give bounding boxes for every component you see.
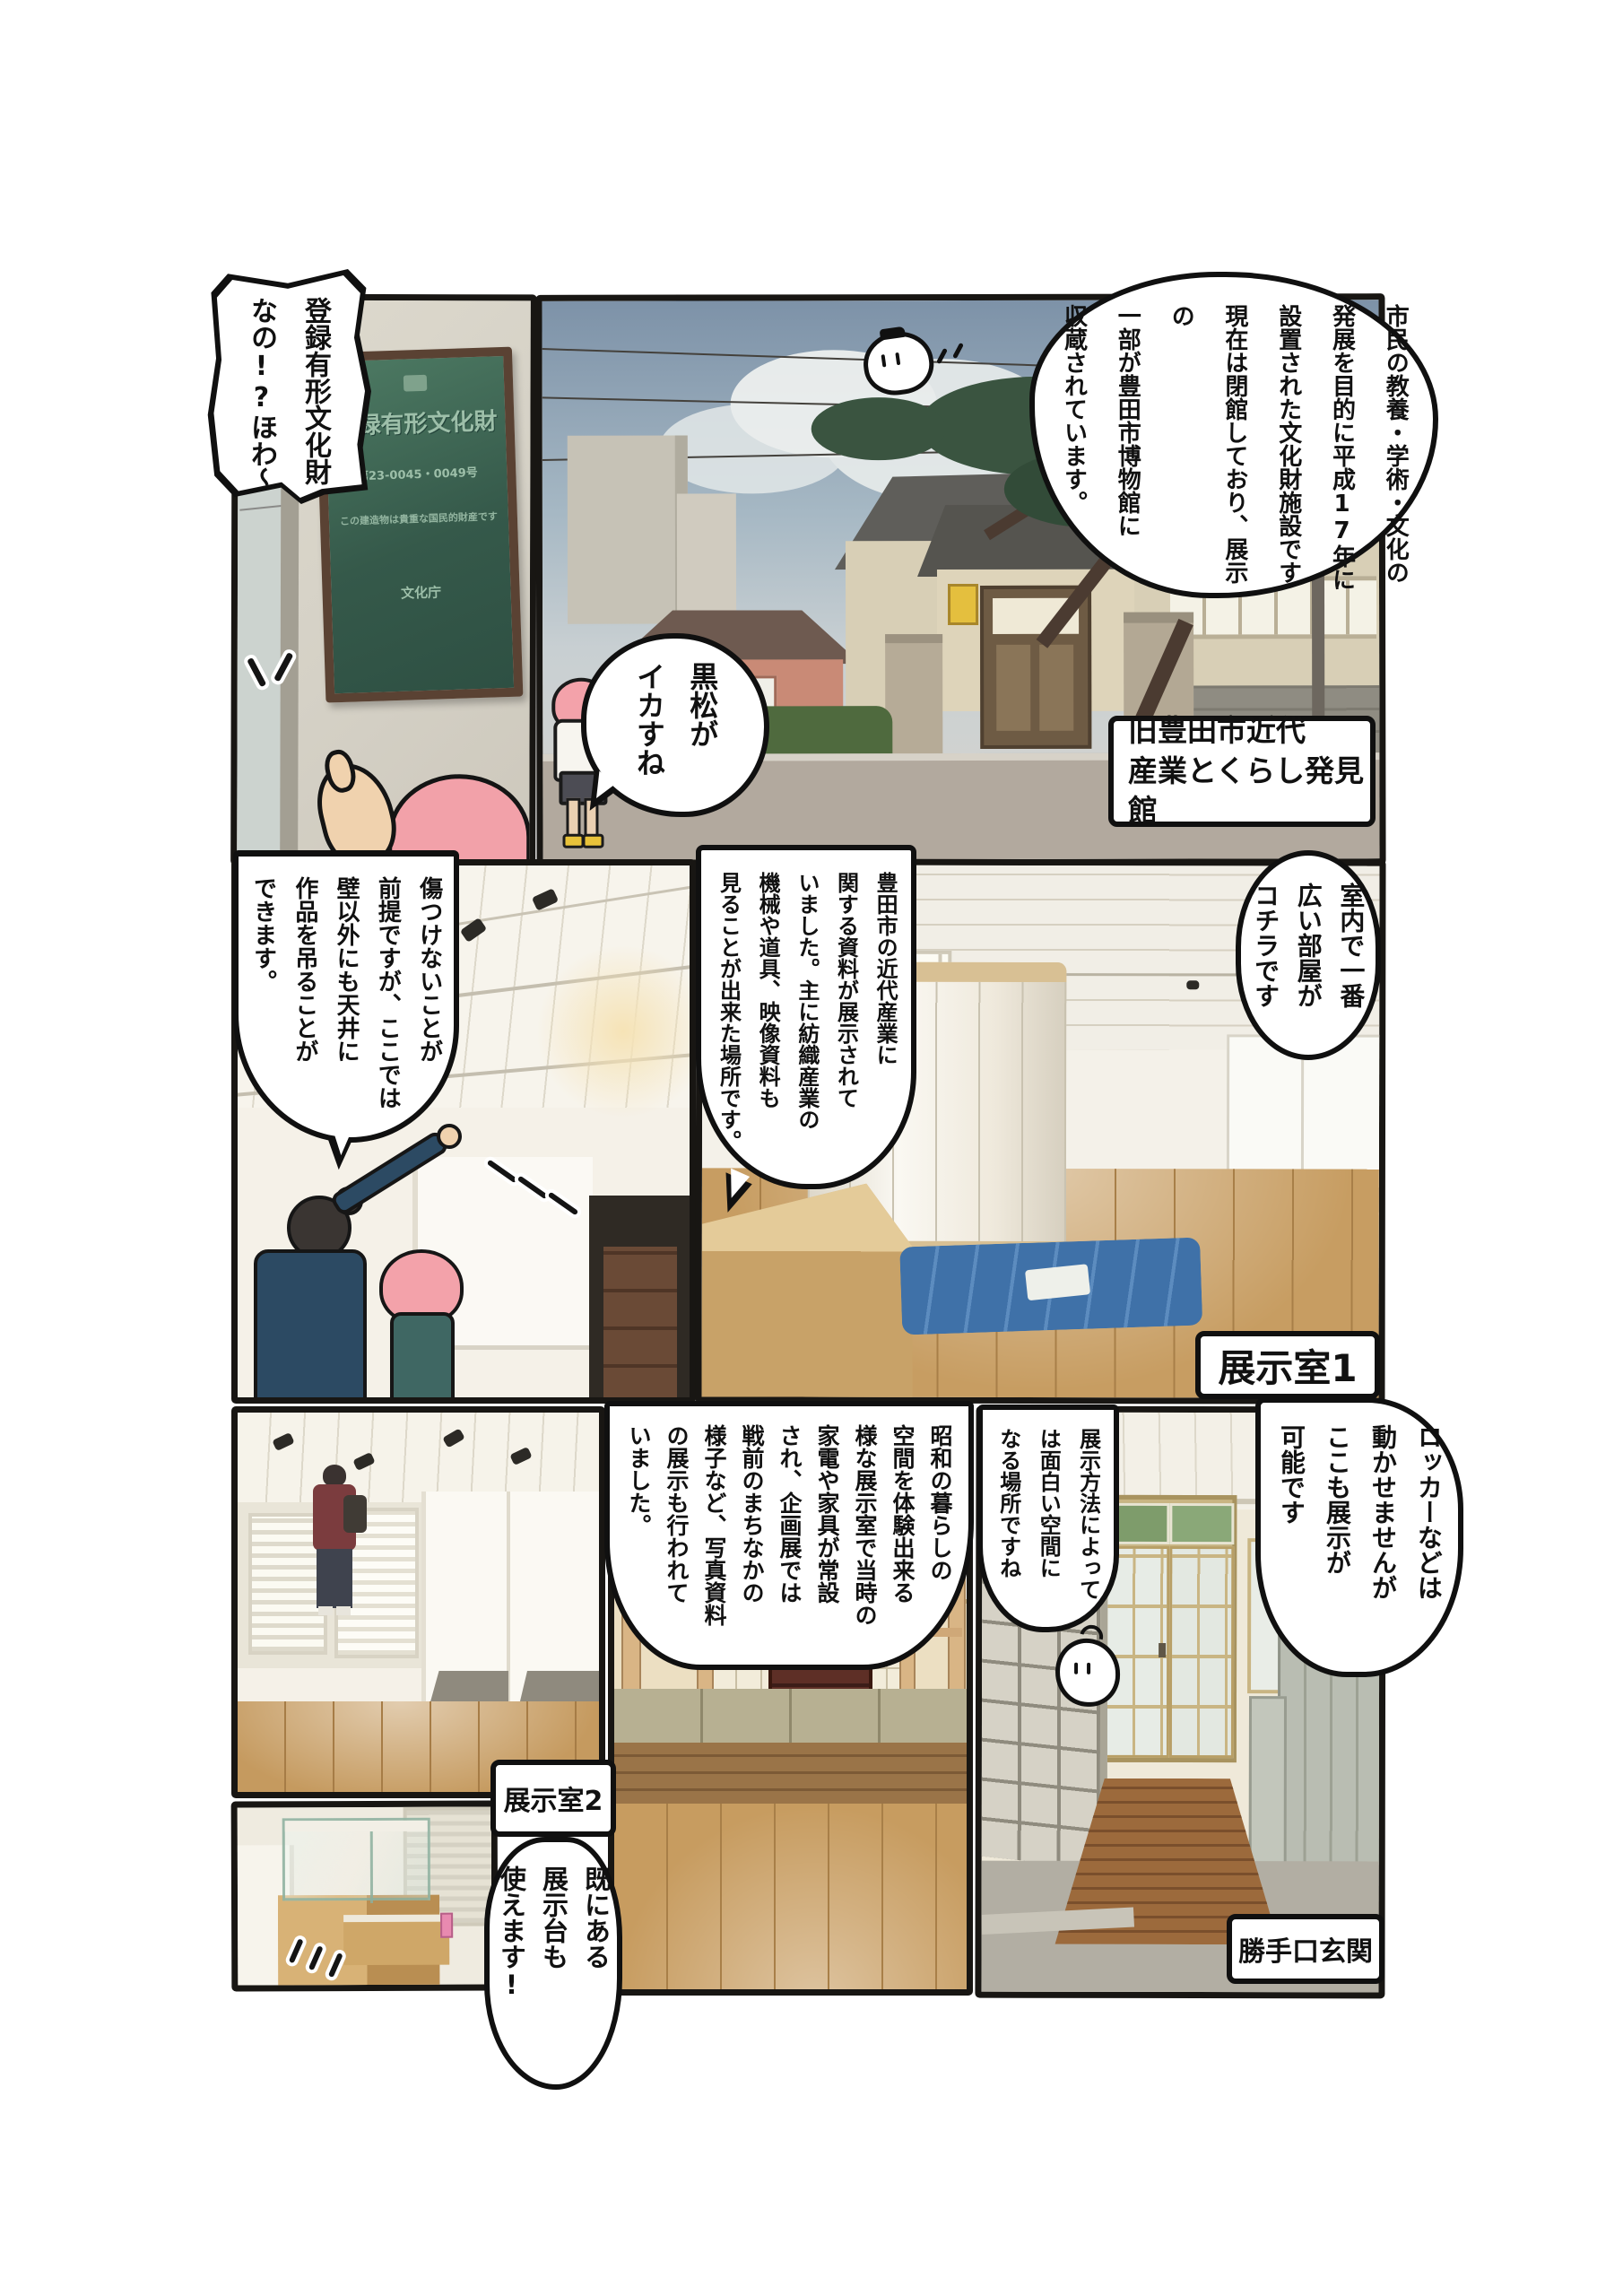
bubble-display-method-text: 展示方法によって は面白い空間に なる場所ですね xyxy=(988,1410,1107,1627)
bubble-display-method: 展示方法によって は面白い空間に なる場所ですね xyxy=(977,1405,1119,1632)
transom-green xyxy=(1169,1503,1234,1544)
bubble-kuromatsu-text: 黒松が イカすね xyxy=(622,639,728,812)
plaque-emblem xyxy=(404,375,428,392)
case-open-drawer xyxy=(343,1915,449,1965)
bubble-pedestal: 既にある 展示台も 使えます! xyxy=(484,1837,622,2090)
wall-base xyxy=(519,1671,600,1705)
wooden-platform xyxy=(701,1183,912,1404)
bubble-intro-text: 市民の教養・学術・文化の 発展を目的に平成17年に 設置された文化財施設です 現… xyxy=(1046,277,1422,593)
chibi-body xyxy=(390,1312,455,1404)
frosted-door-right xyxy=(1169,1546,1234,1758)
door-panel xyxy=(996,645,1030,731)
wood-cabinet xyxy=(603,1247,677,1402)
background-tower xyxy=(677,493,736,628)
ghost-eye xyxy=(895,352,900,365)
bubble-locker-text: ロッカーなどは 動かせませんが ここも展示が 可能です xyxy=(1268,1403,1451,1672)
label-room1-text: 展示室1 xyxy=(1218,1338,1357,1393)
glass-edge xyxy=(370,1831,373,1903)
panel-exhibit-room2-photo xyxy=(231,1406,605,1798)
door-handle xyxy=(1159,1643,1166,1657)
shoulder-bag xyxy=(343,1495,367,1533)
visitor-head xyxy=(323,1465,346,1486)
wall-base xyxy=(430,1671,508,1705)
label-room1: 展示室1 xyxy=(1195,1331,1380,1399)
bubble-jagged-inner: 登録有形文化財 なの!?ほわ〜 xyxy=(211,275,365,498)
hanging-light xyxy=(1186,980,1199,989)
blue-tarp xyxy=(899,1237,1202,1335)
label-entrance: 勝手口玄関 xyxy=(1227,1914,1384,1984)
visitor-shoe xyxy=(336,1606,351,1615)
plaque-agency: 文化庁 xyxy=(331,580,511,604)
ghost-eye xyxy=(881,354,887,367)
bubble-showa-text: 昭和の暮らしの 空間を体験出来る 様な展示室で当時の 家電や家具が常設 され、企… xyxy=(620,1406,959,1665)
platform-front-boards xyxy=(614,1743,973,1805)
woman-body xyxy=(254,1249,367,1404)
visitor-pants xyxy=(317,1549,352,1608)
apartment-building xyxy=(568,436,688,624)
bubble-ceiling-hang-text: 傷つけないことが 前提ですが、ここでは 壁以外にも天井に 作品を吊ることが でき… xyxy=(242,857,449,1137)
ghost-eye xyxy=(1087,1663,1090,1674)
glass-case-top xyxy=(282,1818,430,1901)
bubble-industry-text: 豊田市の近代産業に 関する資料が展示されて いました。主に紡織産業の 機械や道具… xyxy=(708,850,904,1184)
bubble-industry: 豊田市の近代産業に 関する資料が展示されて いました。主に紡織産業の 機械や道具… xyxy=(696,845,916,1189)
door-panel xyxy=(1039,645,1073,731)
label-entrance-text: 勝手口玄関 xyxy=(1238,1929,1373,1969)
bubble-pedestal-text: 既にある 展示台も 使えます! xyxy=(490,1842,617,2084)
case-top-sheet xyxy=(285,1821,428,1832)
label-building-name-text: 旧豊田市近代 産業とくらし発見館 xyxy=(1128,711,1370,831)
girl-shoe xyxy=(582,834,603,848)
bubble-tail-fill xyxy=(328,1126,352,1156)
bubble-showa: 昭和の暮らしの 空間を体験出来る 様な展示室で当時の 家電や家具が常設 され、企… xyxy=(604,1401,974,1670)
ghost-cap xyxy=(880,326,906,341)
bubble-widest-room-text: 室内で一番 広い部屋が コチラです xyxy=(1245,856,1373,1055)
bubble-intro: 市民の教養・学術・文化の 発展を目的に平成17年に 設置された文化財施設です 現… xyxy=(1029,272,1438,598)
manga-page: 登録有形文化財 第23-0045・0049号 この建造物は貴重な国民的財産です … xyxy=(0,0,1623,2296)
panel-display-case-photo xyxy=(231,1800,499,1991)
bubble-ceiling-hang: 傷つけないことが 前提ですが、ここでは 壁以外にも天井に 作品を吊ることが でき… xyxy=(233,850,459,1143)
plaque-note: この建造物は貴重な国民的財産です xyxy=(329,509,508,528)
label-room2-text: 展示室2 xyxy=(504,1779,603,1818)
label-building-name: 旧豊田市近代 産業とくらし発見館 xyxy=(1108,716,1376,827)
ghost-eye xyxy=(1074,1663,1078,1674)
ghost-character xyxy=(1055,1639,1120,1707)
short-locker xyxy=(1249,1696,1287,1881)
visitor-shoe xyxy=(318,1606,333,1615)
pink-lock-tag xyxy=(440,1913,453,1938)
display-walls xyxy=(421,1492,603,1707)
paper-on-tarp xyxy=(1025,1264,1090,1300)
bubble-registered-property: 登録有形文化財 なの!?ほわ〜 xyxy=(204,269,371,504)
yellow-sign xyxy=(948,584,978,625)
wood-floor xyxy=(614,1804,973,1996)
bubble-widest-room: 室内で一番 広い部屋が コチラです xyxy=(1236,850,1381,1060)
label-room2: 展示室2 xyxy=(490,1760,616,1837)
girl-shoe xyxy=(562,834,584,848)
bubble-locker: ロッカーなどは 動かせませんが ここも展示が 可能です xyxy=(1255,1397,1463,1677)
bubble-registered-text: 登録有形文化財 なの!?ほわ〜 xyxy=(234,275,342,498)
pine-canopy xyxy=(811,397,946,460)
